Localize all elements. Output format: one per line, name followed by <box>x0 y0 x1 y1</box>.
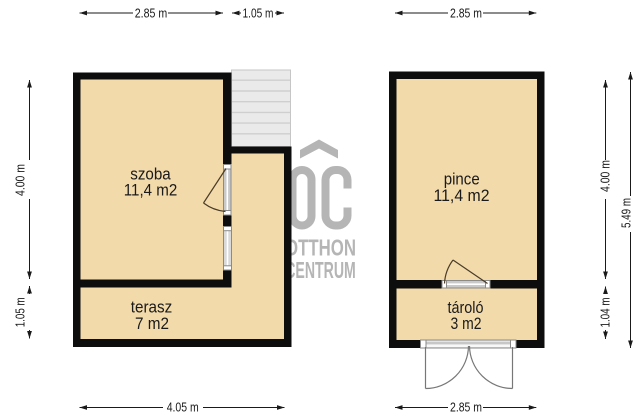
svg-text:5.49 m: 5.49 m <box>619 198 634 228</box>
svg-text:2.85 m: 2.85 m <box>450 5 482 20</box>
svg-text:4.00 m: 4.00 m <box>597 160 612 192</box>
svg-text:1.04 m: 1.04 m <box>597 298 612 328</box>
svg-text:11,4 m2: 11,4 m2 <box>124 181 178 200</box>
svg-text:2.85 m: 2.85 m <box>450 399 482 414</box>
svg-text:4.00 m: 4.00 m <box>13 164 28 196</box>
svg-text:CENTRUM: CENTRUM <box>285 257 356 283</box>
svg-text:4.05 m: 4.05 m <box>167 399 199 414</box>
svg-text:3 m2: 3 m2 <box>451 314 482 333</box>
svg-text:7 m2: 7 m2 <box>135 314 169 333</box>
svg-text:1.05 m: 1.05 m <box>243 5 274 20</box>
svg-text:11,4 m2: 11,4 m2 <box>434 186 490 205</box>
svg-text:2.85 m: 2.85 m <box>135 5 168 20</box>
svg-text:1.05 m: 1.05 m <box>13 297 28 327</box>
